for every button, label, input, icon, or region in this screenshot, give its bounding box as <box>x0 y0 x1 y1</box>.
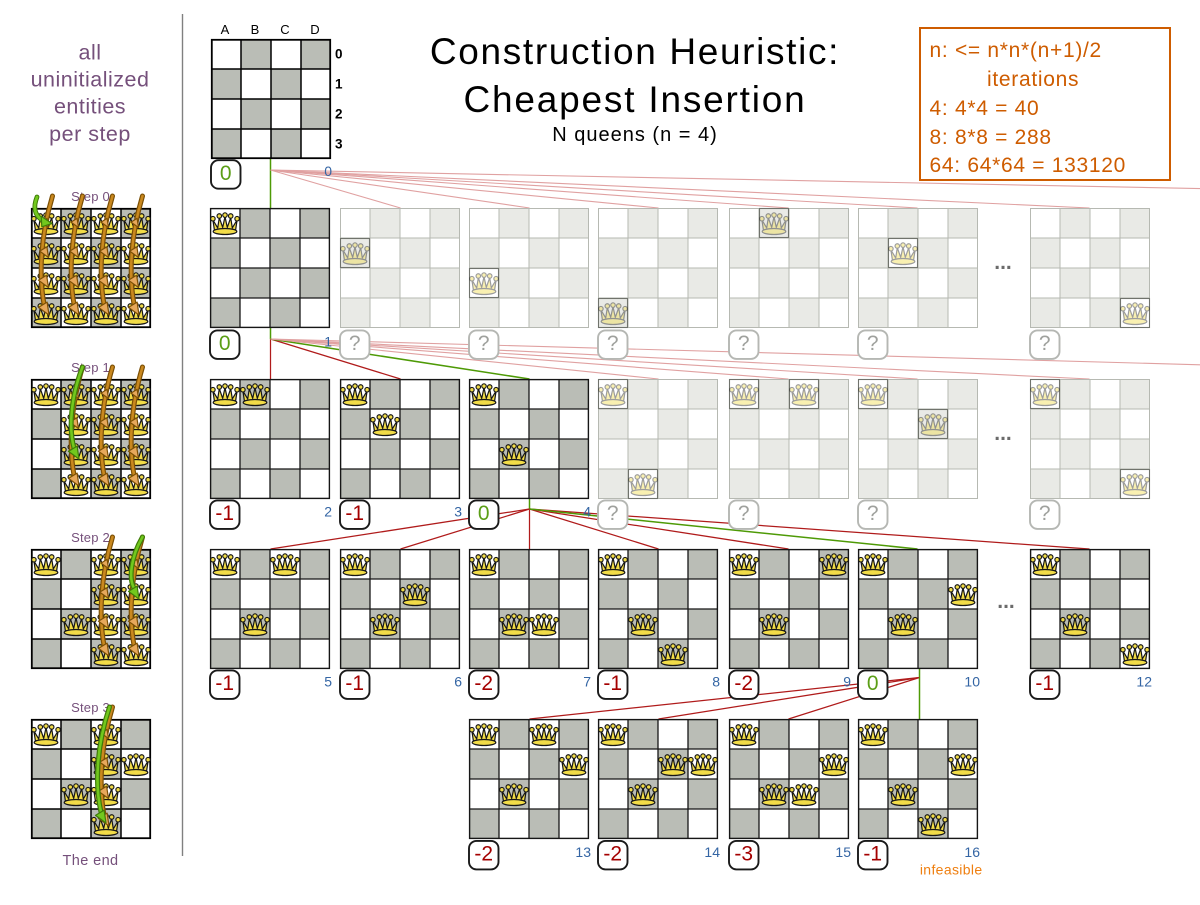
svg-text:-2: -2 <box>474 843 493 866</box>
svg-text:Step 1: Step 1 <box>71 360 110 375</box>
svg-text:0: 0 <box>219 332 231 355</box>
svg-text:?: ? <box>1039 332 1051 355</box>
svg-text:?: ? <box>607 332 619 355</box>
svg-text:-1: -1 <box>603 672 622 695</box>
svg-text:?: ? <box>867 332 879 355</box>
svg-text:-1: -1 <box>345 502 364 525</box>
svg-text:?: ? <box>738 502 750 525</box>
svg-text:2: 2 <box>335 107 343 122</box>
svg-text:9: 9 <box>843 673 851 689</box>
svg-text:16: 16 <box>964 844 980 860</box>
svg-text:2: 2 <box>324 503 332 519</box>
svg-text:Construction Heuristic:: Construction Heuristic: <box>430 31 840 72</box>
svg-text:14: 14 <box>704 844 720 860</box>
svg-text:uninitialized: uninitialized <box>31 68 150 92</box>
svg-text:3: 3 <box>335 137 343 152</box>
svg-text:B: B <box>251 22 260 37</box>
svg-text:4: 4*4 = 40: 4: 4*4 = 40 <box>930 97 1040 120</box>
svg-text:?: ? <box>738 332 750 355</box>
svg-text:Cheapest Insertion: Cheapest Insertion <box>464 79 807 120</box>
svg-text:...: ... <box>994 422 1012 445</box>
svg-text:...: ... <box>994 251 1012 274</box>
svg-text:?: ? <box>349 332 361 355</box>
svg-text:-2: -2 <box>734 672 753 695</box>
svg-text:A: A <box>221 22 230 37</box>
svg-text:Step 3: Step 3 <box>71 700 110 715</box>
svg-text:...: ... <box>997 590 1015 613</box>
svg-text:1: 1 <box>324 333 332 349</box>
svg-text:?: ? <box>867 502 879 525</box>
svg-text:-1: -1 <box>215 502 234 525</box>
svg-text:8: 8*8 = 288: 8: 8*8 = 288 <box>930 126 1052 149</box>
svg-text:-1: -1 <box>1035 672 1054 695</box>
svg-text:64: 64*64 = 133120: 64: 64*64 = 133120 <box>930 154 1127 177</box>
svg-text:all: all <box>78 41 101 65</box>
svg-text:-1: -1 <box>215 672 234 695</box>
svg-text:Step 2: Step 2 <box>71 530 110 545</box>
svg-text:iterations: iterations <box>987 68 1079 91</box>
svg-text:5: 5 <box>324 673 332 689</box>
svg-text:-1: -1 <box>345 672 364 695</box>
svg-text:n: <= n*n*(n+1)/2: n: <= n*n*(n+1)/2 <box>930 39 1102 62</box>
svg-text:Step 0: Step 0 <box>71 189 110 204</box>
svg-text:13: 13 <box>575 844 591 860</box>
svg-text:D: D <box>310 22 319 37</box>
svg-text:15: 15 <box>835 844 851 860</box>
svg-text:The end: The end <box>62 853 118 869</box>
svg-text:6: 6 <box>454 673 462 689</box>
svg-text:per step: per step <box>49 122 131 146</box>
svg-text:0: 0 <box>324 163 332 179</box>
svg-text:-2: -2 <box>474 672 493 695</box>
svg-text:-1: -1 <box>863 843 882 866</box>
svg-text:0: 0 <box>220 162 232 185</box>
svg-text:?: ? <box>478 332 490 355</box>
svg-text:?: ? <box>607 502 619 525</box>
svg-text:0: 0 <box>867 672 879 695</box>
svg-text:8: 8 <box>712 673 720 689</box>
svg-text:4: 4 <box>583 503 591 519</box>
svg-text:7: 7 <box>583 673 591 689</box>
svg-text:0: 0 <box>335 47 343 62</box>
svg-text:0: 0 <box>478 502 490 525</box>
svg-text:infeasible: infeasible <box>920 862 983 878</box>
svg-text:3: 3 <box>454 503 462 519</box>
svg-text:entities: entities <box>54 95 126 119</box>
svg-text:10: 10 <box>964 673 980 689</box>
svg-text:12: 12 <box>1136 673 1152 689</box>
svg-text:1: 1 <box>335 77 343 92</box>
svg-text:-3: -3 <box>734 843 753 866</box>
svg-text:?: ? <box>1039 502 1051 525</box>
svg-text:C: C <box>280 22 289 37</box>
svg-text:N queens (n = 4): N queens (n = 4) <box>552 124 718 146</box>
svg-text:-2: -2 <box>603 843 622 866</box>
